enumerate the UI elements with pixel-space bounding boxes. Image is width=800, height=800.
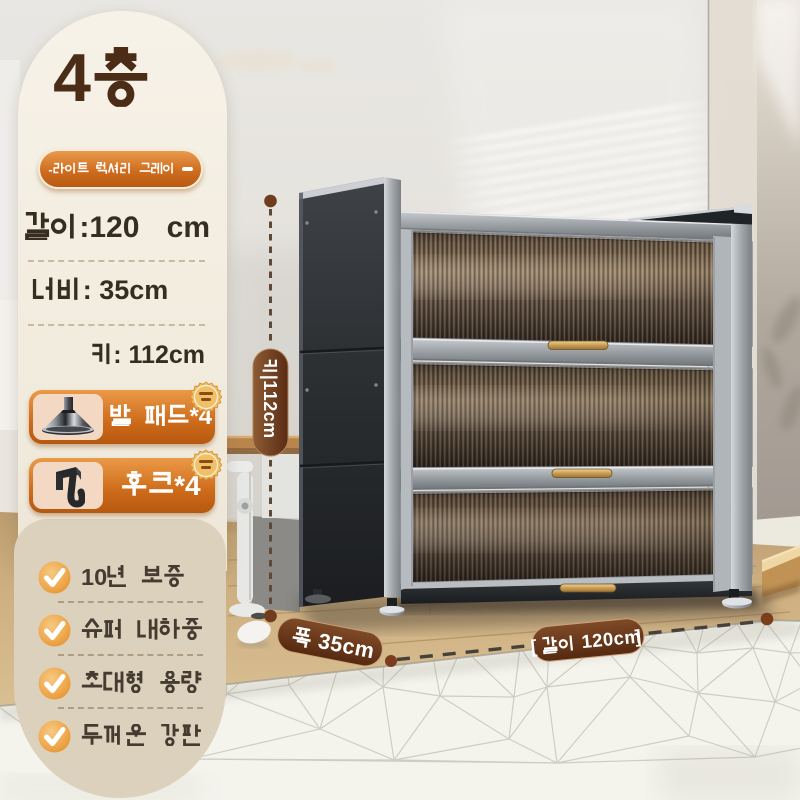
svg-text:c: c	[260, 412, 280, 422]
svg-text:1: 1	[260, 391, 280, 401]
svg-text:|: |	[260, 375, 280, 380]
svg-text:1: 1	[260, 380, 280, 390]
svg-text:2: 2	[260, 401, 280, 411]
svg-text:m: m	[260, 422, 280, 438]
